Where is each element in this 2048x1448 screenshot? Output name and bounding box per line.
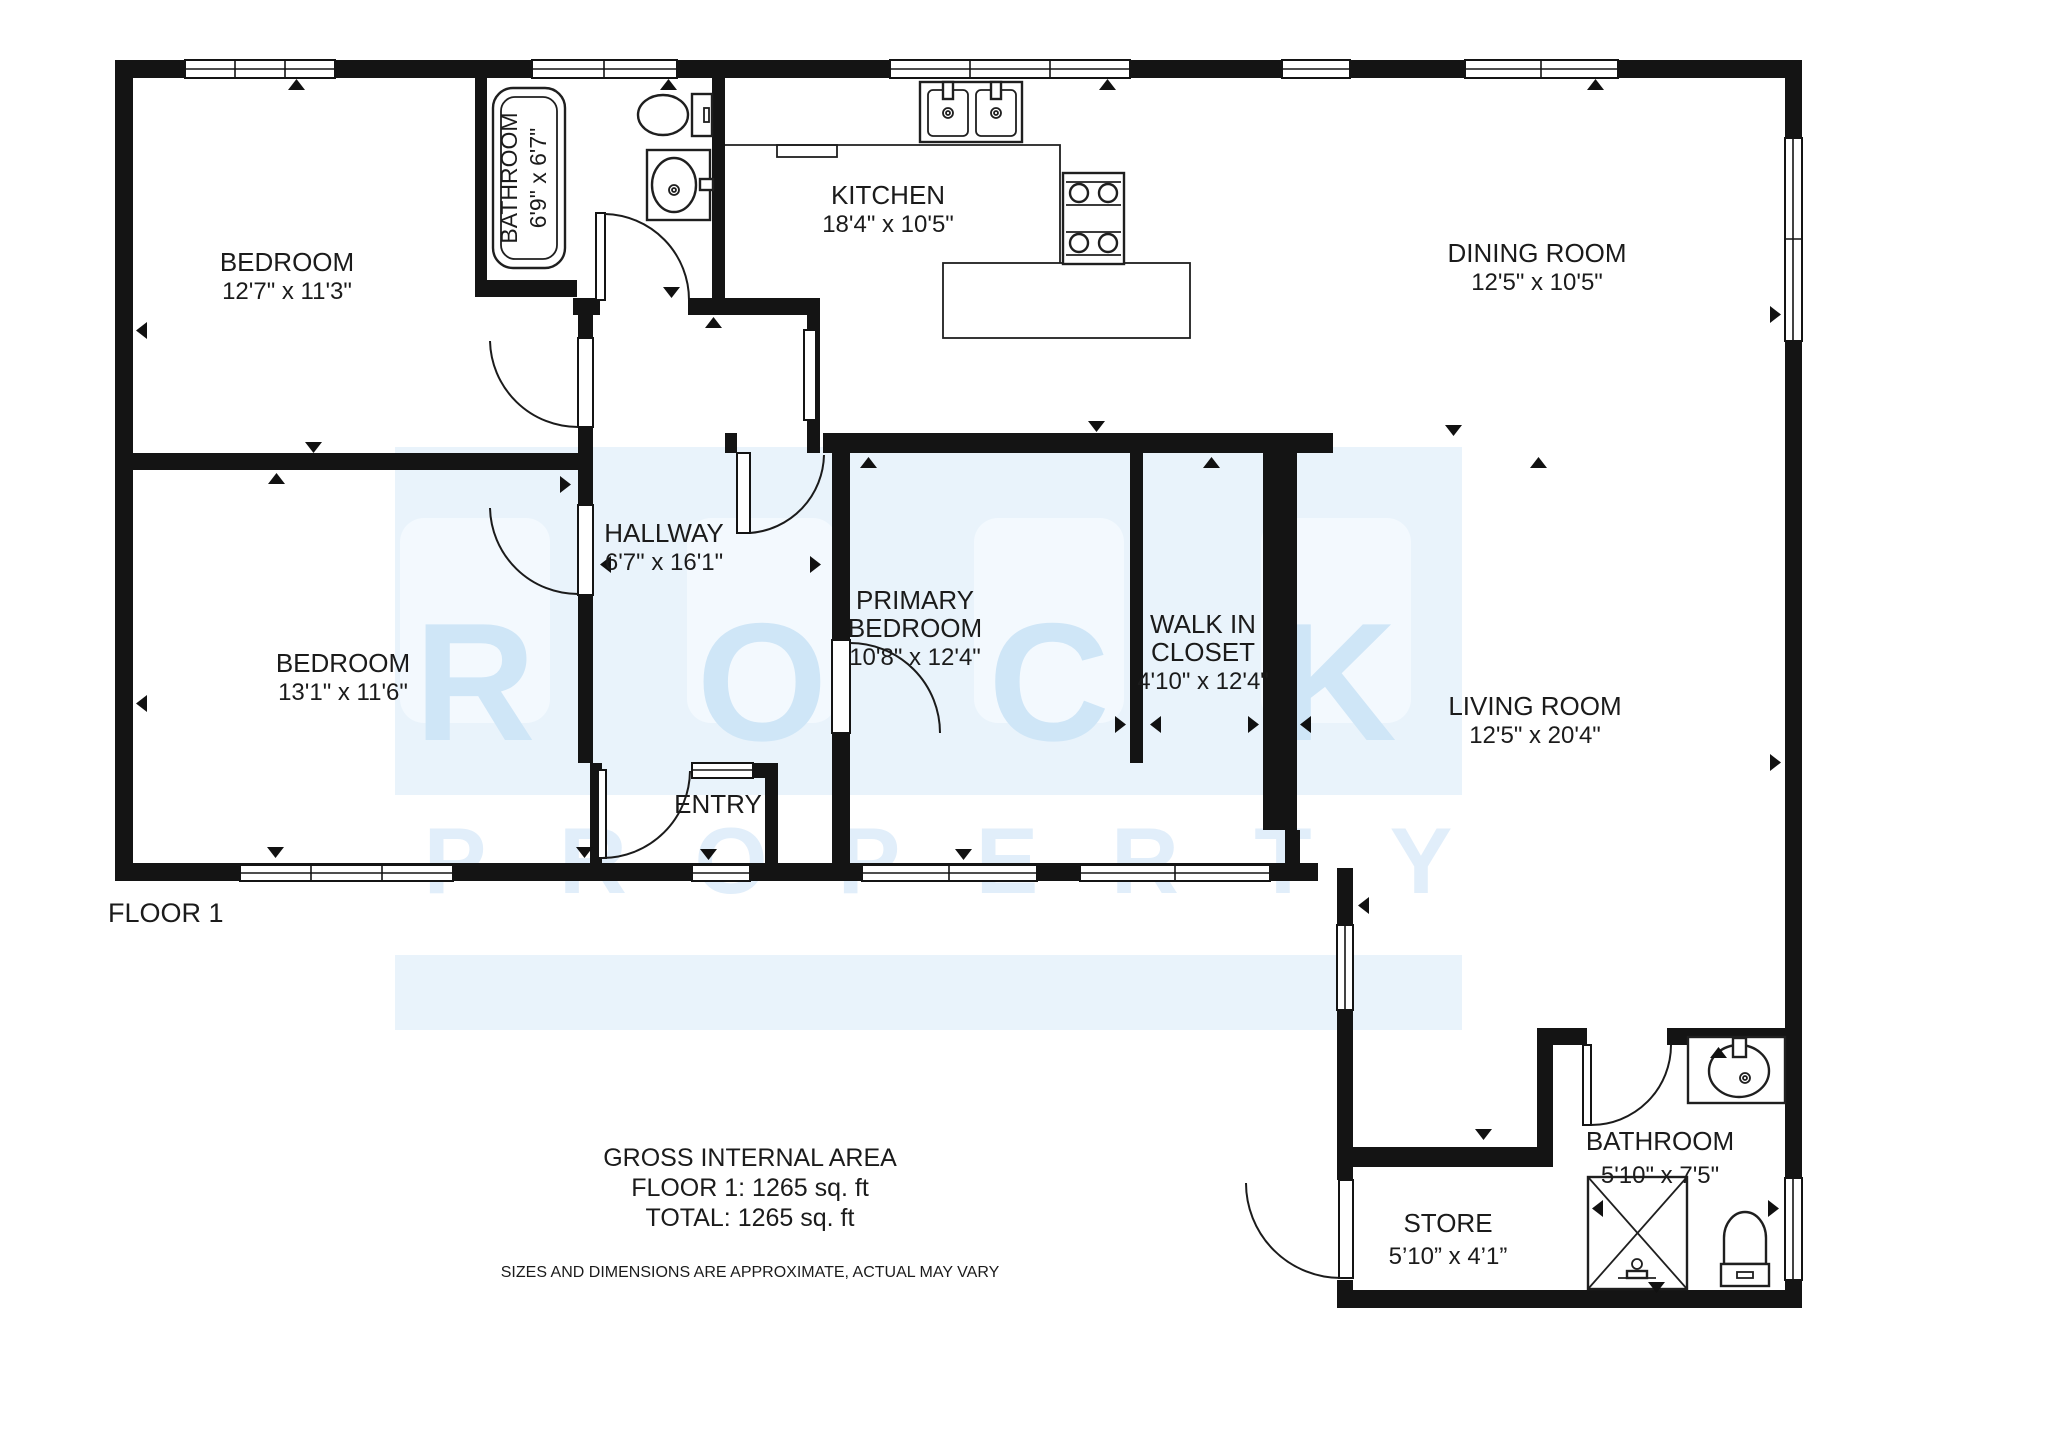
floor-label: FLOOR 1 <box>108 898 224 928</box>
door-leaf <box>596 213 605 300</box>
room-label-kitchen: KITCHEN 18'4" x 10'5" <box>822 180 954 238</box>
door-swing <box>1591 1045 1671 1125</box>
floor-plan-page: R O C K P R O P E R T Y <box>0 0 2048 1448</box>
window <box>1282 60 1350 78</box>
room-name: STORE <box>1403 1208 1492 1238</box>
room-dims: 13'1" x 11'6" <box>278 679 408 706</box>
toilet-icon <box>1721 1212 1769 1286</box>
room-name: PRIMARY <box>856 585 974 615</box>
room-dims: 5’10” x 4’1” <box>1389 1243 1508 1270</box>
window <box>1785 1178 1802 1280</box>
kitchen-sink-icon <box>920 82 1022 142</box>
window <box>1785 138 1802 341</box>
toilet-icon <box>638 94 712 136</box>
watermark-letter: P <box>424 808 487 913</box>
window <box>1465 60 1618 78</box>
room-label-walk-in-closet: WALK IN CLOSET 4'10" x 12'4" <box>1137 609 1269 695</box>
area-total-value: TOTAL: 1265 sq. ft <box>646 1204 855 1232</box>
area-floor-value: FLOOR 1: 1265 sq. ft <box>631 1174 869 1202</box>
door-leaf <box>737 453 750 533</box>
room-dims: 6'7" x 16'1" <box>605 549 723 576</box>
room-label-hallway: HALLWAY 6'7" x 16'1" <box>604 518 723 576</box>
room-name: DINING ROOM <box>1447 238 1626 268</box>
door-leaf <box>1583 1045 1591 1125</box>
stove-icon <box>1063 173 1124 264</box>
watermark-letter: C <box>988 588 1109 776</box>
floor-plan-svg: R O C K P R O P E R T Y <box>0 0 2048 1448</box>
room-name: LIVING ROOM <box>1448 691 1621 721</box>
watermark: R O C K P R O P E R T Y <box>395 447 1462 1030</box>
room-name: KITCHEN <box>831 180 945 210</box>
room-dims: 5'10" x 7'5" <box>1601 1162 1719 1189</box>
window <box>890 60 1130 78</box>
door-swing <box>1246 1183 1341 1278</box>
room-dims: 18'4" x 10'5" <box>822 211 954 238</box>
room-name: BATHROOM <box>496 112 522 243</box>
room-label-store: STORE 5’10” x 4’1” <box>1389 1208 1508 1270</box>
area-title: GROSS INTERNAL AREA <box>603 1144 897 1172</box>
watermark-letter: O <box>694 808 767 913</box>
watermark-band-bottom <box>395 955 1462 1030</box>
watermark-letter: O <box>697 588 828 776</box>
window <box>862 865 1037 881</box>
door-leaf <box>1339 1180 1353 1278</box>
room-dims: 10'8" x 12'4" <box>849 644 981 671</box>
room-label-bedroom-1: BEDROOM 12'7" x 11'3" <box>220 247 354 305</box>
shower-icon <box>1588 1177 1687 1289</box>
room-name: BEDROOM <box>848 613 982 643</box>
watermark-letter: Y <box>1390 808 1453 913</box>
watermark-letter: R <box>414 588 535 776</box>
watermark-letter: E <box>976 808 1039 913</box>
bathroom-sink-icon <box>647 150 713 220</box>
room-name: ENTRY <box>674 789 762 819</box>
room-name: CLOSET <box>1151 637 1255 667</box>
room-label-dining: DINING ROOM 12'5" x 10'5" <box>1447 238 1626 296</box>
room-name: BEDROOM <box>276 648 410 678</box>
room-name: WALK IN <box>1150 609 1256 639</box>
room-dims: 12'7" x 11'3" <box>222 278 352 305</box>
front-door-panel <box>692 865 750 881</box>
watermark-letter: R <box>1111 808 1179 913</box>
door-leaf <box>578 505 593 595</box>
room-label-primary-bedroom: PRIMARY BEDROOM 10'8" x 12'4" <box>848 585 982 671</box>
door-leaf <box>804 330 816 420</box>
room-label-bedroom-2: BEDROOM 13'1" x 11'6" <box>276 648 410 706</box>
window <box>532 60 677 78</box>
door-swing <box>490 341 578 427</box>
room-name: BEDROOM <box>220 247 354 277</box>
disclaimer: SIZES AND DIMENSIONS ARE APPROXIMATE, AC… <box>501 1264 1000 1281</box>
window <box>692 763 753 778</box>
window <box>185 60 335 78</box>
room-dims: 12'5" x 20'4" <box>1469 722 1601 749</box>
room-label-entry: ENTRY <box>674 789 762 819</box>
room-dims: 4'10" x 12'4" <box>1137 668 1269 695</box>
window <box>240 865 453 881</box>
window <box>1080 865 1270 881</box>
room-dims: 6'9" x 6'7" <box>525 128 551 229</box>
room-label-living-room: LIVING ROOM 12'5" x 20'4" <box>1448 691 1621 749</box>
room-name: HALLWAY <box>604 518 723 548</box>
room-name: BATHROOM <box>1586 1126 1734 1156</box>
room-label-bathroom-2: BATHROOM 5'10" x 7'5" <box>1586 1126 1734 1189</box>
bathroom2-sink-icon <box>1688 1037 1785 1103</box>
door-leaf <box>578 338 593 427</box>
door-leaf <box>598 770 606 858</box>
window <box>1337 925 1353 1010</box>
room-dims: 12'5" x 10'5" <box>1471 269 1603 296</box>
door-leaf <box>832 640 850 733</box>
